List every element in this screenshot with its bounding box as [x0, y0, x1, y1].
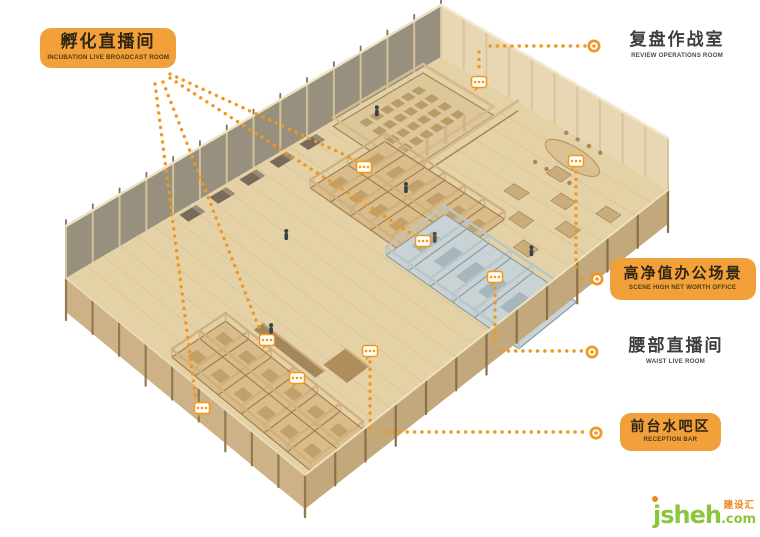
- donut-circle-icon: [586, 346, 599, 359]
- label-cn: 前台水吧区: [631, 418, 711, 434]
- label-cn: 复盘作战室: [630, 30, 725, 50]
- donut-circle-icon: [591, 273, 604, 286]
- donut-circle-icon: [588, 40, 601, 53]
- floorplan-canvas: 孵化直播间 INCUBATION LIVE BROADCAST ROOM 复盘作…: [0, 0, 760, 537]
- annotation-reception-bar: 前台水吧区 RECEPTION BAR: [620, 413, 721, 451]
- label-en: REVIEW OPERATIONS ROOM: [631, 52, 723, 59]
- label-cn: 腰部直播间: [629, 336, 724, 356]
- watermark-dot-icon: [652, 496, 658, 502]
- annotation-waist-live-room: 腰部直播间 WAIST LIVE ROOM: [612, 335, 740, 368]
- donut-circle-icon: [590, 427, 603, 440]
- label-cn: 孵化直播间: [61, 32, 156, 52]
- watermark-tld: .com: [721, 512, 756, 527]
- label-en: RECEPTION BAR: [644, 436, 698, 443]
- label-cn: 高净值办公场景: [623, 265, 742, 282]
- label-en: SCENE HIGH NET WORTH OFFICE: [629, 284, 736, 291]
- watermark-logo: 建设汇 jsheh.com: [643, 499, 755, 529]
- watermark-site-name: jsheh.com: [653, 501, 756, 529]
- label-en: WAIST LIVE ROOM: [647, 358, 706, 365]
- annotation-high-net-worth-office: 高净值办公场景 SCENE HIGH NET WORTH OFFICE: [610, 258, 756, 300]
- label-en: INCUBATION LIVE BROADCAST ROOM: [47, 54, 169, 61]
- annotation-incubation-live-room: 孵化直播间 INCUBATION LIVE BROADCAST ROOM: [40, 28, 176, 68]
- annotation-review-operations-room: 复盘作战室 REVIEW OPERATIONS ROOM: [606, 29, 748, 63]
